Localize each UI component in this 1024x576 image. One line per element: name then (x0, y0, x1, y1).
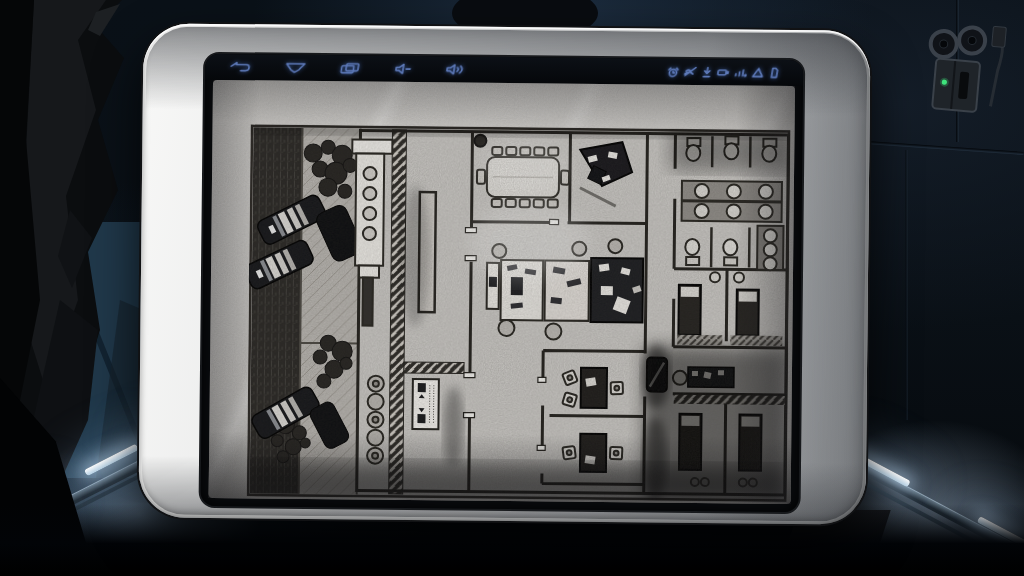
alarm-clock-icon (666, 66, 680, 78)
nav-icon-row (228, 61, 466, 75)
back-icon (228, 61, 252, 73)
status-icon-row (666, 66, 780, 79)
download-icon (701, 66, 713, 78)
volume-up-icon (444, 63, 466, 75)
signal-bars-icon (733, 66, 748, 78)
intercom-box (932, 58, 980, 112)
sim-card-icon (768, 67, 780, 79)
pencil-grain (247, 124, 791, 502)
wire-connector (992, 26, 1007, 47)
volume-down-icon (393, 63, 413, 75)
tablet-screen[interactable] (201, 54, 804, 512)
intercom-device (900, 11, 1024, 141)
scene (0, 0, 1024, 576)
warning-triangle-icon (751, 67, 765, 79)
recent-apps-icon (338, 62, 362, 74)
wall-seam (905, 150, 908, 420)
home-icon (283, 62, 307, 74)
battery-icon (716, 66, 730, 78)
map-image[interactable] (247, 124, 791, 502)
tablet-device (138, 23, 870, 525)
intercom-wire (987, 40, 1003, 107)
no-signal-icon (683, 66, 698, 78)
wall-seam (852, 140, 1024, 155)
map-paper (209, 80, 795, 504)
